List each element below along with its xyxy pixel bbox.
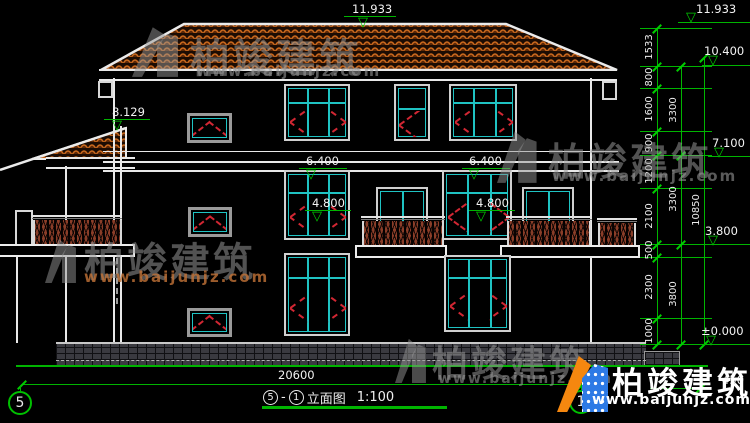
terrace-rail-top bbox=[32, 215, 122, 219]
window-transom bbox=[289, 277, 345, 279]
watermark-logo-icon bbox=[497, 128, 543, 184]
casement-opening-icon bbox=[290, 106, 308, 136]
wall-line bbox=[590, 78, 592, 343]
window-mullion bbox=[473, 89, 475, 136]
window-transom bbox=[289, 102, 345, 104]
elevation-line bbox=[104, 119, 150, 120]
watermark-logo-icon bbox=[132, 24, 186, 78]
tophung-opening-icon bbox=[193, 119, 226, 137]
title-separator: - bbox=[281, 390, 286, 405]
level-triangle-icon bbox=[469, 169, 479, 180]
window-transom bbox=[289, 192, 345, 194]
brand-url: www.baijunjz.com bbox=[592, 392, 750, 408]
watermark-logo-icon bbox=[395, 336, 431, 384]
dim-label: 2300 bbox=[644, 265, 656, 309]
level-triangle-icon bbox=[306, 169, 316, 180]
dimension-chain-line bbox=[704, 57, 705, 345]
window-mullion bbox=[467, 175, 469, 235]
window-mullion bbox=[468, 260, 470, 327]
dim-tick-icon bbox=[17, 380, 27, 390]
drawing-title: 5 - 1 立面图 1:100 bbox=[263, 388, 394, 407]
dim-label: 3800 bbox=[668, 272, 680, 316]
window bbox=[284, 253, 350, 336]
tophung-opening-icon bbox=[194, 213, 226, 231]
balcony-rail-top bbox=[361, 216, 445, 220]
title-underline bbox=[262, 406, 447, 409]
watermark-url: www.baijunjz.com bbox=[552, 167, 737, 185]
balcony-railing bbox=[507, 221, 591, 247]
window bbox=[284, 84, 350, 141]
stair-window bbox=[187, 308, 232, 337]
dim-label: 20600 bbox=[278, 369, 315, 382]
elevation-line bbox=[344, 16, 396, 17]
level-triangle-icon bbox=[312, 211, 322, 222]
window-transom bbox=[399, 108, 425, 110]
watermark-url: www.baijunjz.com bbox=[84, 268, 269, 286]
stair-window bbox=[187, 113, 232, 143]
dim-label: 3300 bbox=[668, 88, 680, 132]
level-triangle-icon bbox=[476, 211, 486, 222]
balcony-slab bbox=[500, 245, 640, 258]
elevation-line bbox=[698, 344, 750, 345]
window-transom bbox=[447, 192, 507, 194]
dim-label: 10850 bbox=[691, 188, 703, 232]
terrace-post bbox=[15, 210, 33, 248]
casement-opening-icon bbox=[455, 106, 473, 136]
elevation-value: 11.933 bbox=[696, 3, 736, 16]
casement-opening-icon bbox=[290, 196, 308, 236]
elevation-line bbox=[708, 156, 750, 157]
axis-number: 5 bbox=[16, 395, 25, 411]
title-scale: 1:100 bbox=[357, 390, 394, 405]
title-axis-to: 1 bbox=[289, 390, 304, 405]
balcony-railing bbox=[362, 221, 444, 247]
level-triangle-icon bbox=[112, 120, 122, 131]
casement-opening-icon bbox=[450, 281, 468, 328]
window-transom bbox=[449, 277, 506, 279]
watermark-logo-icon bbox=[45, 236, 81, 284]
axis-bubble-left: 5 bbox=[8, 391, 32, 415]
window bbox=[394, 84, 430, 141]
casement-opening-icon bbox=[328, 281, 346, 332]
casement-opening-icon bbox=[328, 106, 346, 136]
title-name: 立面图 bbox=[307, 388, 346, 407]
elevation-line bbox=[702, 244, 750, 245]
wall-line bbox=[16, 246, 18, 343]
gutter-end-left bbox=[98, 81, 113, 98]
dim-label: 1000 bbox=[644, 309, 656, 353]
casement-opening-icon bbox=[448, 196, 467, 236]
casement-opening-icon bbox=[489, 281, 507, 328]
window-transom bbox=[454, 102, 512, 104]
dimension-chain-line bbox=[681, 66, 682, 345]
balcony-slab bbox=[355, 245, 447, 258]
balcony-rail-top bbox=[597, 218, 637, 222]
balcony-railing bbox=[598, 223, 636, 247]
tophung-opening-icon bbox=[193, 314, 226, 331]
casement-opening-icon bbox=[399, 111, 426, 137]
elevation-line bbox=[702, 65, 750, 66]
elevation-line bbox=[678, 22, 750, 23]
balcony-rail-top bbox=[506, 216, 592, 220]
gutter-end-right bbox=[602, 81, 617, 100]
window bbox=[444, 255, 511, 332]
watermark-url: www.baijunjz.com bbox=[196, 62, 381, 80]
title-axis-from: 5 bbox=[263, 390, 278, 405]
casement-opening-icon bbox=[290, 281, 308, 332]
elevation-drawing: 11.933 8.129 6.400 6.400 4.800 4.800 153… bbox=[0, 0, 750, 423]
